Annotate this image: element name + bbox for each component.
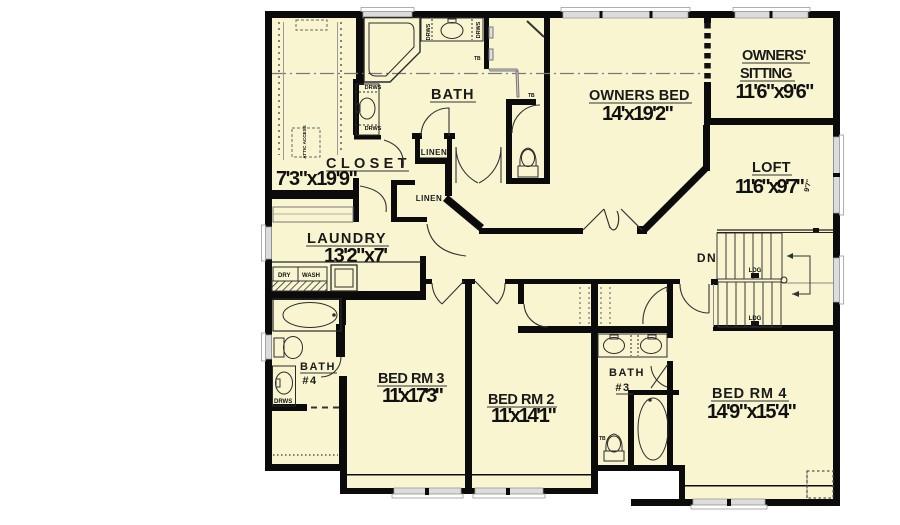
svg-text:DRY: DRY [278,273,290,279]
svg-text:DRWS: DRWS [426,23,432,40]
svg-text:14'9"x15'4": 14'9"x15'4" [707,401,797,423]
svg-text:BED RM 4: BED RM 4 [712,386,788,402]
svg-text:SITTING: SITTING [740,66,794,82]
svg-text:DRWS: DRWS [476,21,482,38]
svg-text:LDG: LDG [749,268,762,274]
svg-text:7'3"x19'9": 7'3"x19'9" [276,168,358,190]
svg-text:LINEN: LINEN [416,194,443,203]
svg-text:LOFT: LOFT [752,160,792,176]
svg-text:#4: #4 [302,375,317,387]
svg-text:14'x19'2": 14'x19'2" [602,103,674,125]
svg-text:11'6"x9'6": 11'6"x9'6" [736,81,815,103]
svg-text:OWNERS': OWNERS' [742,48,808,64]
svg-text:BATH: BATH [431,87,475,103]
svg-text:ATTIC ACCESS: ATTIC ACCESS [302,125,307,158]
svg-text:TB: TB [599,436,606,442]
svg-text:TB: TB [528,93,535,99]
svg-text:LINEN: LINEN [421,148,448,157]
svg-text:DN: DN [697,251,717,265]
svg-text:TB: TB [336,337,343,343]
svg-text:11'6"x9'7": 11'6"x9'7" [735,176,805,198]
svg-text:#3: #3 [615,382,630,394]
svg-text:DRWS: DRWS [274,399,292,405]
svg-text:11'x17'3": 11'x17'3" [382,385,444,407]
svg-text:WASH: WASH [302,273,320,279]
svg-text:BATH: BATH [609,367,645,379]
svg-text:LDG: LDG [749,316,762,322]
svg-text:OWNERS BED: OWNERS BED [589,88,691,104]
svg-text:DRWS: DRWS [365,85,382,91]
svg-text:BATH: BATH [300,361,336,373]
svg-text:11'x14'1": 11'x14'1" [491,405,557,427]
svg-text:DRWS: DRWS [365,126,382,132]
svg-text:TB: TB [474,56,481,62]
svg-text:13'2"x7': 13'2"x7' [324,245,388,267]
